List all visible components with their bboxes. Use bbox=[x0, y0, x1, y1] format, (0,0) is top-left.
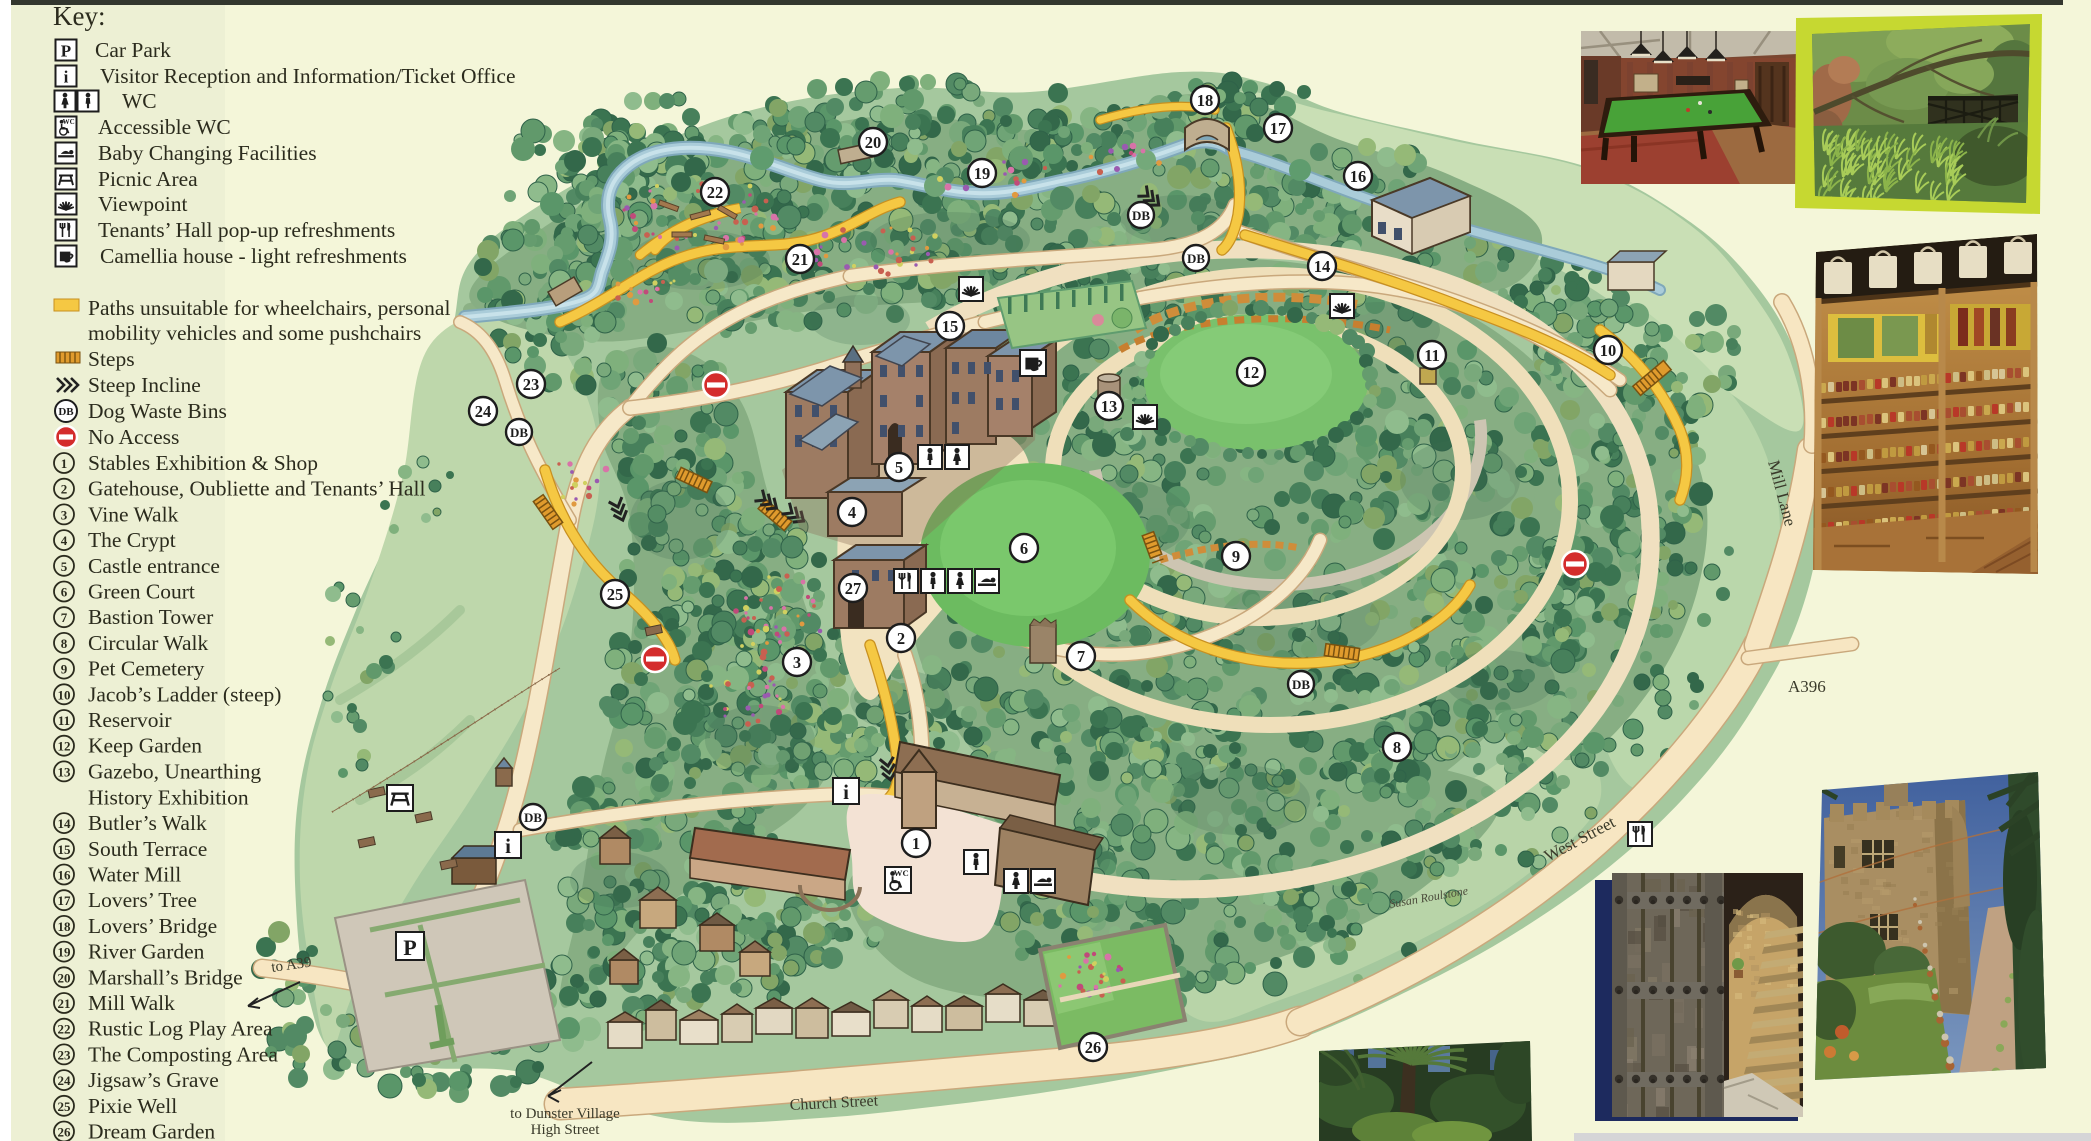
svg-text:Keep Garden: Keep Garden bbox=[88, 734, 202, 758]
svg-text:Paths unsuitable for wheelchai: Paths unsuitable for wheelchairs, person… bbox=[88, 296, 450, 320]
svg-text:River Garden: River Garden bbox=[88, 940, 205, 964]
svg-text:Steep Incline: Steep Incline bbox=[88, 373, 201, 397]
svg-text:13: 13 bbox=[1101, 397, 1118, 416]
svg-text:6: 6 bbox=[1020, 539, 1028, 558]
svg-text:21: 21 bbox=[792, 250, 809, 269]
svg-text:WC: WC bbox=[63, 118, 75, 126]
svg-text:25: 25 bbox=[607, 585, 624, 604]
svg-text:26: 26 bbox=[1085, 1038, 1102, 1057]
svg-text:23: 23 bbox=[523, 375, 540, 394]
svg-text:DB: DB bbox=[524, 810, 542, 825]
svg-text:Baby Changing Facilities: Baby Changing Facilities bbox=[98, 141, 317, 165]
svg-text:17: 17 bbox=[1270, 119, 1287, 138]
svg-text:Jacob’s Ladder (steep): Jacob’s Ladder (steep) bbox=[88, 682, 281, 706]
svg-text:Steps: Steps bbox=[88, 347, 135, 371]
svg-text:South Terrace: South Terrace bbox=[88, 837, 207, 861]
svg-text:DB: DB bbox=[510, 425, 528, 440]
svg-text:Camellia house - light refresh: Camellia house - light refreshments bbox=[100, 244, 407, 268]
svg-text:22: 22 bbox=[707, 183, 724, 202]
svg-text:19: 19 bbox=[974, 164, 991, 183]
svg-text:Tenants’ Hall pop-up refreshme: Tenants’ Hall pop-up refreshments bbox=[98, 218, 395, 242]
svg-text:10: 10 bbox=[58, 687, 71, 702]
svg-text:10: 10 bbox=[1600, 341, 1617, 360]
svg-text:P: P bbox=[61, 42, 71, 61]
svg-text:History Exhibition: History Exhibition bbox=[88, 785, 249, 809]
svg-text:Gatehouse, Oubliette and Tenan: Gatehouse, Oubliette and Tenants’ Hall bbox=[88, 477, 425, 501]
svg-text:Green Court: Green Court bbox=[88, 580, 195, 604]
svg-text:Rustic Log Play Area: Rustic Log Play Area bbox=[88, 1017, 273, 1041]
svg-text:7: 7 bbox=[1077, 647, 1085, 666]
svg-text:8: 8 bbox=[61, 636, 68, 651]
svg-text:Marshall’s Bridge: Marshall’s Bridge bbox=[88, 965, 243, 989]
svg-text:DB: DB bbox=[58, 406, 74, 418]
svg-text:16: 16 bbox=[1350, 167, 1367, 186]
svg-text:2: 2 bbox=[897, 629, 905, 648]
svg-text:Visitor Reception and Informat: Visitor Reception and Information/Ticket… bbox=[100, 64, 515, 88]
svg-text:7: 7 bbox=[61, 610, 68, 625]
svg-text:25: 25 bbox=[58, 1099, 72, 1114]
svg-text:Pixie Well: Pixie Well bbox=[88, 1094, 177, 1118]
svg-text:mobility vehicles and some pus: mobility vehicles and some pushchairs bbox=[88, 321, 421, 345]
svg-text:4: 4 bbox=[848, 503, 856, 522]
svg-text:DB: DB bbox=[1187, 251, 1205, 266]
svg-text:The Composting Area: The Composting Area bbox=[88, 1042, 278, 1066]
svg-text:High Street: High Street bbox=[531, 1122, 601, 1138]
svg-text:i: i bbox=[64, 67, 69, 86]
svg-text:2: 2 bbox=[61, 482, 68, 497]
svg-text:12: 12 bbox=[1243, 363, 1260, 382]
svg-text:Lovers’ Bridge: Lovers’ Bridge bbox=[88, 914, 217, 938]
svg-text:Dog Waste Bins: Dog Waste Bins bbox=[88, 399, 227, 423]
svg-text:15: 15 bbox=[942, 317, 959, 336]
svg-text:Jigsaw’s Grave: Jigsaw’s Grave bbox=[88, 1068, 219, 1092]
svg-text:11: 11 bbox=[58, 713, 70, 728]
svg-text:22: 22 bbox=[58, 1022, 71, 1037]
svg-text:16: 16 bbox=[58, 868, 72, 883]
svg-text:A396: A396 bbox=[1788, 677, 1826, 696]
svg-text:i: i bbox=[505, 834, 511, 858]
svg-text:23: 23 bbox=[58, 1047, 72, 1062]
svg-text:Water Mill: Water Mill bbox=[88, 863, 181, 887]
svg-text:Dream Garden: Dream Garden bbox=[88, 1120, 215, 1141]
svg-text:27: 27 bbox=[845, 579, 862, 598]
svg-text:Pet Cemetery: Pet Cemetery bbox=[88, 657, 205, 681]
svg-text:Key:: Key: bbox=[53, 1, 105, 31]
svg-text:The Crypt: The Crypt bbox=[88, 528, 176, 552]
svg-text:8: 8 bbox=[1393, 738, 1401, 757]
svg-text:24: 24 bbox=[475, 402, 492, 421]
svg-text:Mill Walk: Mill Walk bbox=[88, 991, 175, 1015]
svg-text:3: 3 bbox=[793, 653, 801, 672]
svg-text:12: 12 bbox=[58, 739, 71, 754]
svg-text:26: 26 bbox=[58, 1125, 72, 1140]
svg-text:17: 17 bbox=[58, 893, 72, 908]
svg-text:4: 4 bbox=[61, 533, 68, 548]
svg-text:Car Park: Car Park bbox=[95, 38, 171, 62]
svg-text:9: 9 bbox=[1232, 547, 1240, 566]
svg-text:P: P bbox=[403, 935, 416, 960]
svg-text:1: 1 bbox=[912, 834, 920, 853]
svg-text:Bastion Tower: Bastion Tower bbox=[88, 605, 213, 629]
svg-text:Vine Walk: Vine Walk bbox=[88, 502, 179, 526]
svg-text:24: 24 bbox=[58, 1073, 72, 1088]
svg-text:18: 18 bbox=[58, 919, 72, 934]
svg-text:WC: WC bbox=[122, 89, 157, 113]
svg-text:Accessible WC: Accessible WC bbox=[98, 115, 231, 139]
svg-text:19: 19 bbox=[58, 945, 72, 960]
svg-text:Picnic Area: Picnic Area bbox=[98, 167, 198, 191]
svg-text:20: 20 bbox=[865, 133, 882, 152]
svg-text:9: 9 bbox=[61, 662, 68, 677]
svg-text:3: 3 bbox=[61, 507, 68, 522]
svg-text:15: 15 bbox=[58, 842, 72, 857]
svg-text:WC: WC bbox=[894, 868, 909, 878]
svg-text:Gazebo, Unearthing: Gazebo, Unearthing bbox=[88, 759, 261, 783]
svg-text:Stables Exhibition & Shop: Stables Exhibition & Shop bbox=[88, 451, 318, 475]
svg-text:20: 20 bbox=[58, 970, 71, 985]
svg-text:13: 13 bbox=[58, 764, 72, 779]
svg-text:Viewpoint: Viewpoint bbox=[98, 192, 188, 216]
svg-text:DB: DB bbox=[1132, 208, 1150, 223]
svg-text:5: 5 bbox=[61, 559, 68, 574]
svg-text:to Dunster Village: to Dunster Village bbox=[510, 1106, 620, 1122]
svg-text:Reservoir: Reservoir bbox=[88, 708, 172, 732]
svg-text:No Access: No Access bbox=[88, 425, 179, 449]
svg-text:i: i bbox=[843, 780, 849, 804]
svg-text:14: 14 bbox=[1314, 257, 1331, 276]
svg-text:1: 1 bbox=[61, 456, 68, 471]
svg-text:6: 6 bbox=[61, 585, 68, 600]
svg-text:Castle entrance: Castle entrance bbox=[88, 554, 220, 578]
svg-text:Lovers’ Tree: Lovers’ Tree bbox=[88, 888, 197, 912]
svg-text:5: 5 bbox=[895, 458, 903, 477]
svg-text:21: 21 bbox=[58, 996, 71, 1011]
svg-text:11: 11 bbox=[1424, 346, 1440, 365]
svg-text:18: 18 bbox=[1197, 91, 1214, 110]
svg-text:14: 14 bbox=[58, 816, 72, 831]
svg-text:DB: DB bbox=[1292, 677, 1310, 692]
svg-text:Butler’s Walk: Butler’s Walk bbox=[88, 811, 207, 835]
svg-text:Circular Walk: Circular Walk bbox=[88, 631, 209, 655]
